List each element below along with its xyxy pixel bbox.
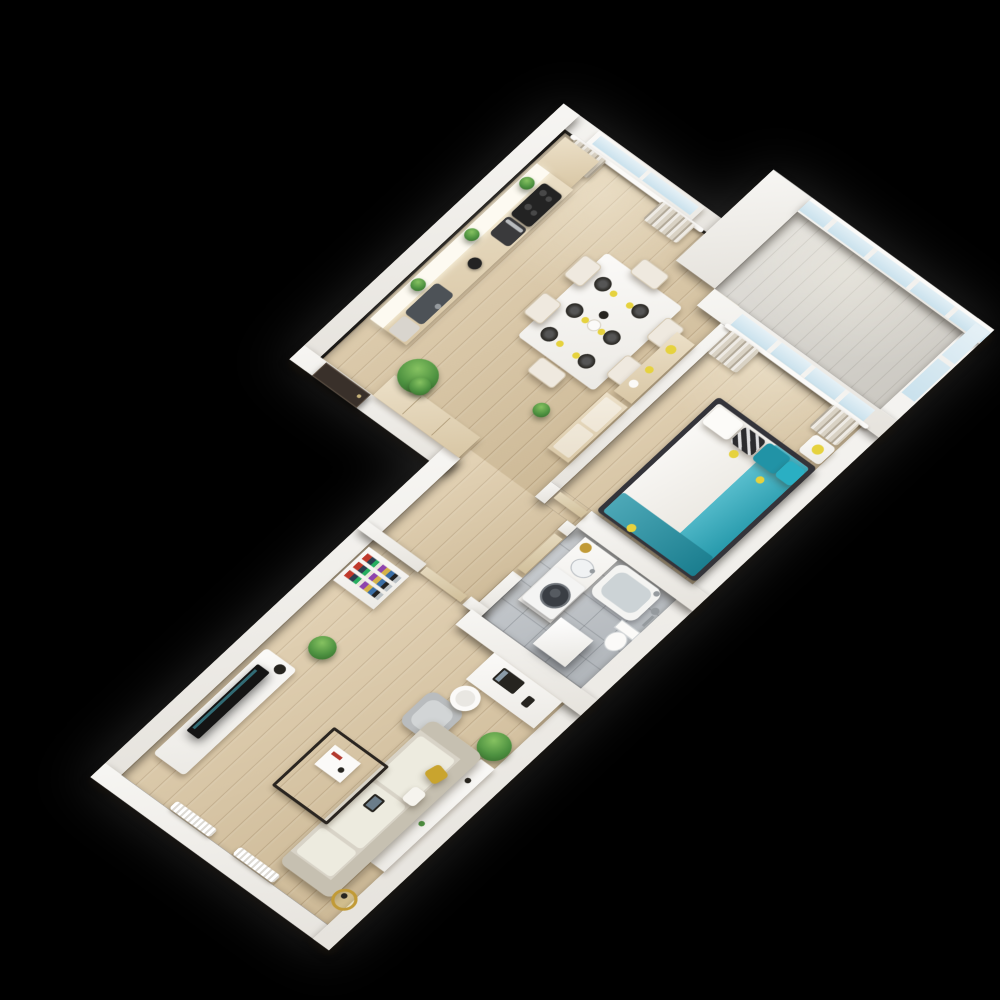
render-canvas: [0, 0, 1000, 1000]
